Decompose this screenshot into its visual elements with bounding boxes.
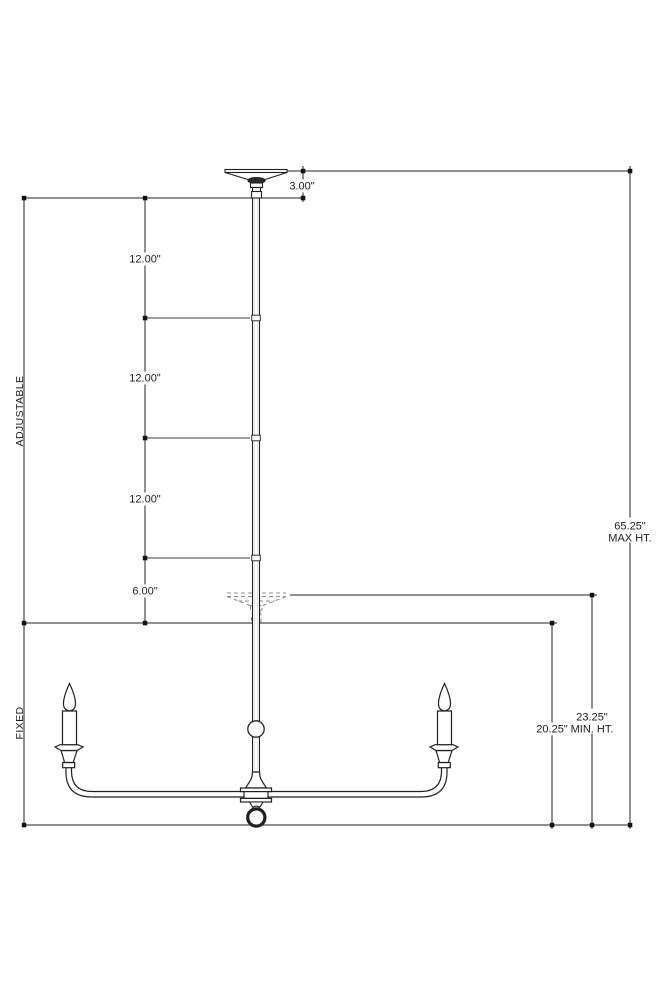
dot — [22, 196, 27, 201]
left-candle-cup — [61, 751, 77, 763]
canopy-stem-2 — [253, 188, 261, 192]
canopy-top-plate — [225, 170, 287, 173]
canopy-cone-left — [225, 173, 250, 181]
left-candle-sleeve — [63, 711, 77, 745]
center-ball — [248, 721, 264, 737]
rod-segment-ticks — [145, 318, 250, 558]
left-cup-collar — [63, 763, 75, 768]
right-candle-sleeve — [438, 711, 452, 745]
dot — [143, 621, 148, 626]
dimension-drawing-page: 3.00" 12.00" 12.00" 12.00" 6.00" 65.25" … — [0, 0, 667, 1000]
dot — [143, 316, 148, 321]
ceiling-canopy — [225, 170, 287, 199]
right-bobeche — [430, 745, 458, 751]
fixture-dimension-drawing: 3.00" 12.00" 12.00" 12.00" 6.00" 65.25" … — [0, 0, 667, 1000]
rod-coupling-3 — [252, 555, 261, 561]
dot — [628, 823, 633, 828]
side-label-adjustable: ADJUSTABLE — [14, 376, 26, 447]
left-bobeche — [55, 745, 83, 751]
right-candle-flame — [439, 684, 451, 711]
dim-label-min-height-text: MIN. HT. — [571, 724, 614, 736]
right-candle-assembly — [430, 684, 458, 768]
dimension-labels: 3.00" 12.00" 12.00" 12.00" 6.00" 65.25" … — [14, 180, 652, 740]
dim-label-max-height-value: 65.25" — [614, 521, 646, 533]
dim-label-rod-stub: 6.00" — [132, 586, 157, 598]
rod-coupling-2 — [252, 435, 261, 441]
center-stem — [241, 721, 272, 826]
downrod-tube — [253, 198, 260, 772]
dot — [590, 593, 595, 598]
left-candle-assembly — [55, 684, 83, 768]
dot — [550, 621, 555, 626]
dot — [301, 169, 306, 174]
dim-label-fixture-height: 20.25" — [536, 724, 568, 736]
dot — [143, 556, 148, 561]
hub-cone — [246, 772, 267, 788]
canopy-stem-3 — [252, 192, 262, 199]
hub-body — [244, 792, 268, 799]
dot — [628, 169, 633, 174]
dim-label-max-height-text: MAX HT. — [608, 533, 651, 545]
rod-coupling-1 — [252, 315, 261, 321]
right-cup-collar — [438, 763, 450, 768]
finial-ring — [248, 809, 265, 826]
dim-label-rod-segment-1: 12.00" — [129, 254, 161, 266]
dot — [143, 196, 148, 201]
dot — [143, 436, 148, 441]
dot — [550, 823, 555, 828]
canopy-stem-1 — [251, 183, 263, 188]
dot — [301, 196, 306, 201]
dim-label-min-height-value: 23.25" — [576, 712, 608, 724]
side-label-fixed: FIXED — [14, 707, 26, 740]
downrod — [252, 198, 261, 772]
dim-label-rod-segment-3: 12.00" — [129, 494, 161, 506]
right-candle-cup — [436, 751, 452, 763]
left-candle-flame — [64, 684, 76, 711]
dot — [22, 823, 27, 828]
dot — [22, 621, 27, 626]
dim-label-canopy-height: 3.00" — [289, 181, 314, 193]
canopy-cone-right — [264, 173, 288, 181]
dot — [590, 823, 595, 828]
dim-label-rod-segment-2: 12.00" — [129, 373, 161, 385]
